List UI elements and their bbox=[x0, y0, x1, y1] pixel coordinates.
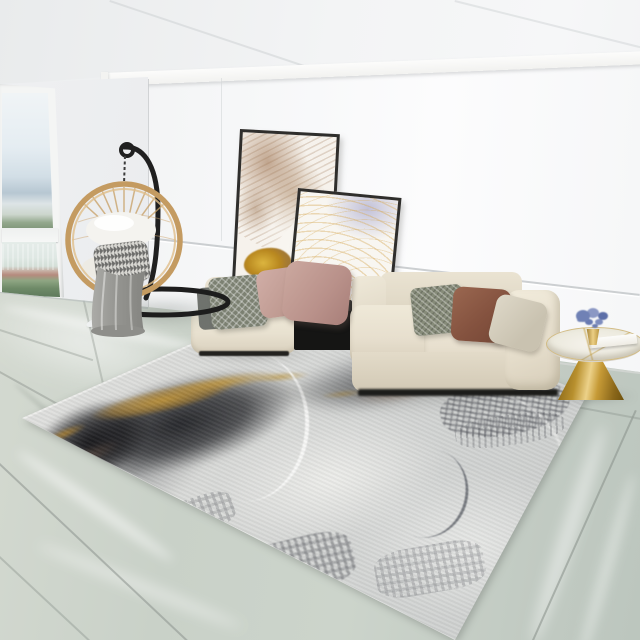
blue-hydrangea-flowers bbox=[576, 310, 590, 322]
living-room-product-photo bbox=[0, 0, 640, 640]
chair-cushions bbox=[82, 212, 156, 286]
hanging-egg-chair bbox=[0, 0, 640, 640]
throw-blanket bbox=[91, 266, 146, 337]
